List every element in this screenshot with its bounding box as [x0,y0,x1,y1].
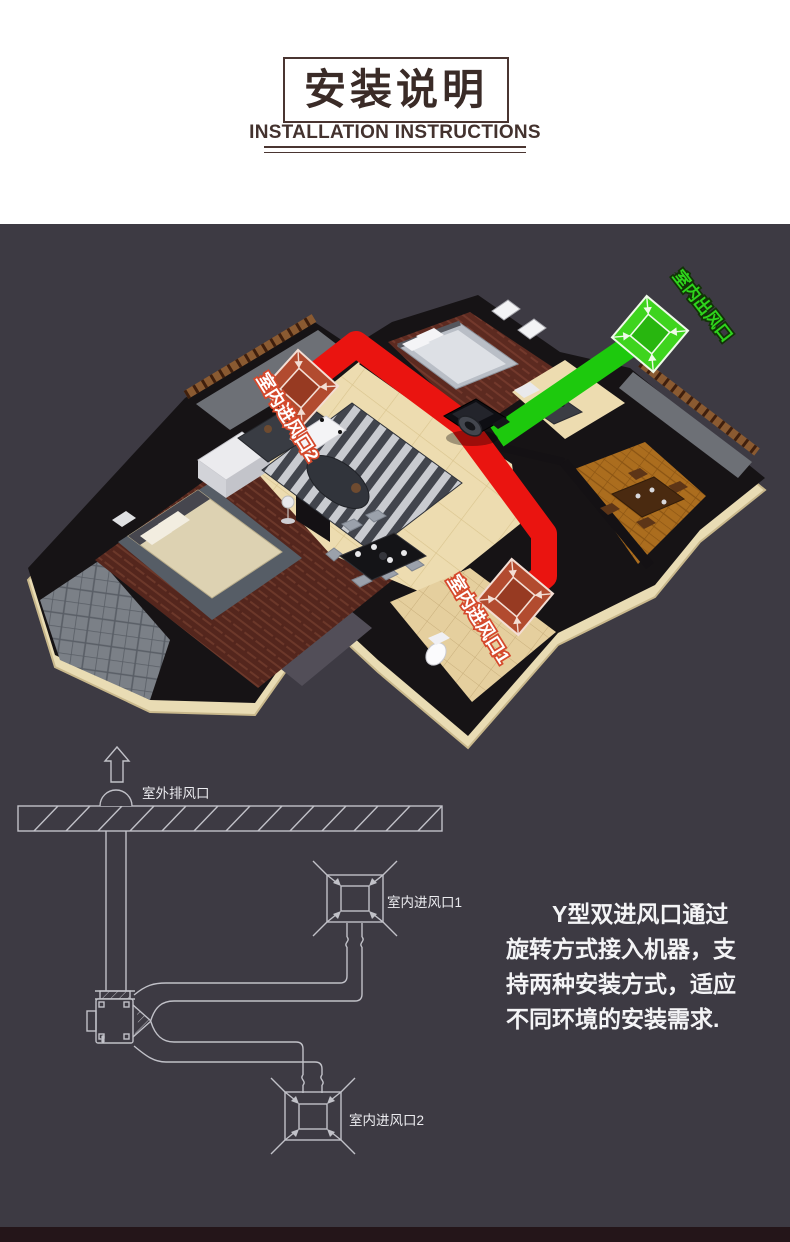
schematic-inlet-2-label: 室内进风口2 [349,1112,424,1128]
schematic-inlet-vent-1 [313,861,397,936]
description-text: Y型双进风口通过 旋转方式接入机器，支 持两种安装方式，适应 不同环境的安装需求… [506,897,774,1037]
house-illustration: 室内出风口 室内进风口2 室内进风口1 [0,224,790,754]
header: 安装说明 INSTALLATION INSTRUCTIONS [0,0,790,224]
lower-branch-duct [134,1022,323,1093]
description-line-1: Y型双进风口通过 [506,897,774,932]
schematic-inlet-1-label: 室内进风口1 [387,894,462,910]
airflow-up-arrow [105,747,129,782]
page-subtitle: INSTALLATION INSTRUCTIONS [0,122,790,144]
description-line-4: 不同环境的安装需求. [506,1002,774,1037]
subtitle-underline [264,146,526,153]
page-title: 安装说明 [304,69,488,111]
title-box: 安装说明 [283,57,509,123]
description-line-3: 持两种安装方式，适应 [506,967,774,1002]
dark-section: 室内出风口 室内进风口2 室内进风口1 [0,224,790,1242]
flange [100,991,130,999]
page: 安装说明 INSTALLATION INSTRUCTIONS [0,0,790,1242]
upper-branch-duct [134,923,363,1020]
schematic-inlet-vent-2 [271,1078,355,1154]
machine-tab [87,1011,96,1031]
outdoor-vent-dome [100,790,132,806]
outdoor-exhaust-label: 室外排风口 [142,785,210,801]
footer-strip [0,1227,790,1242]
description-line-2: 旋转方式接入机器，支 [506,932,774,967]
exhaust-duct [106,831,126,991]
